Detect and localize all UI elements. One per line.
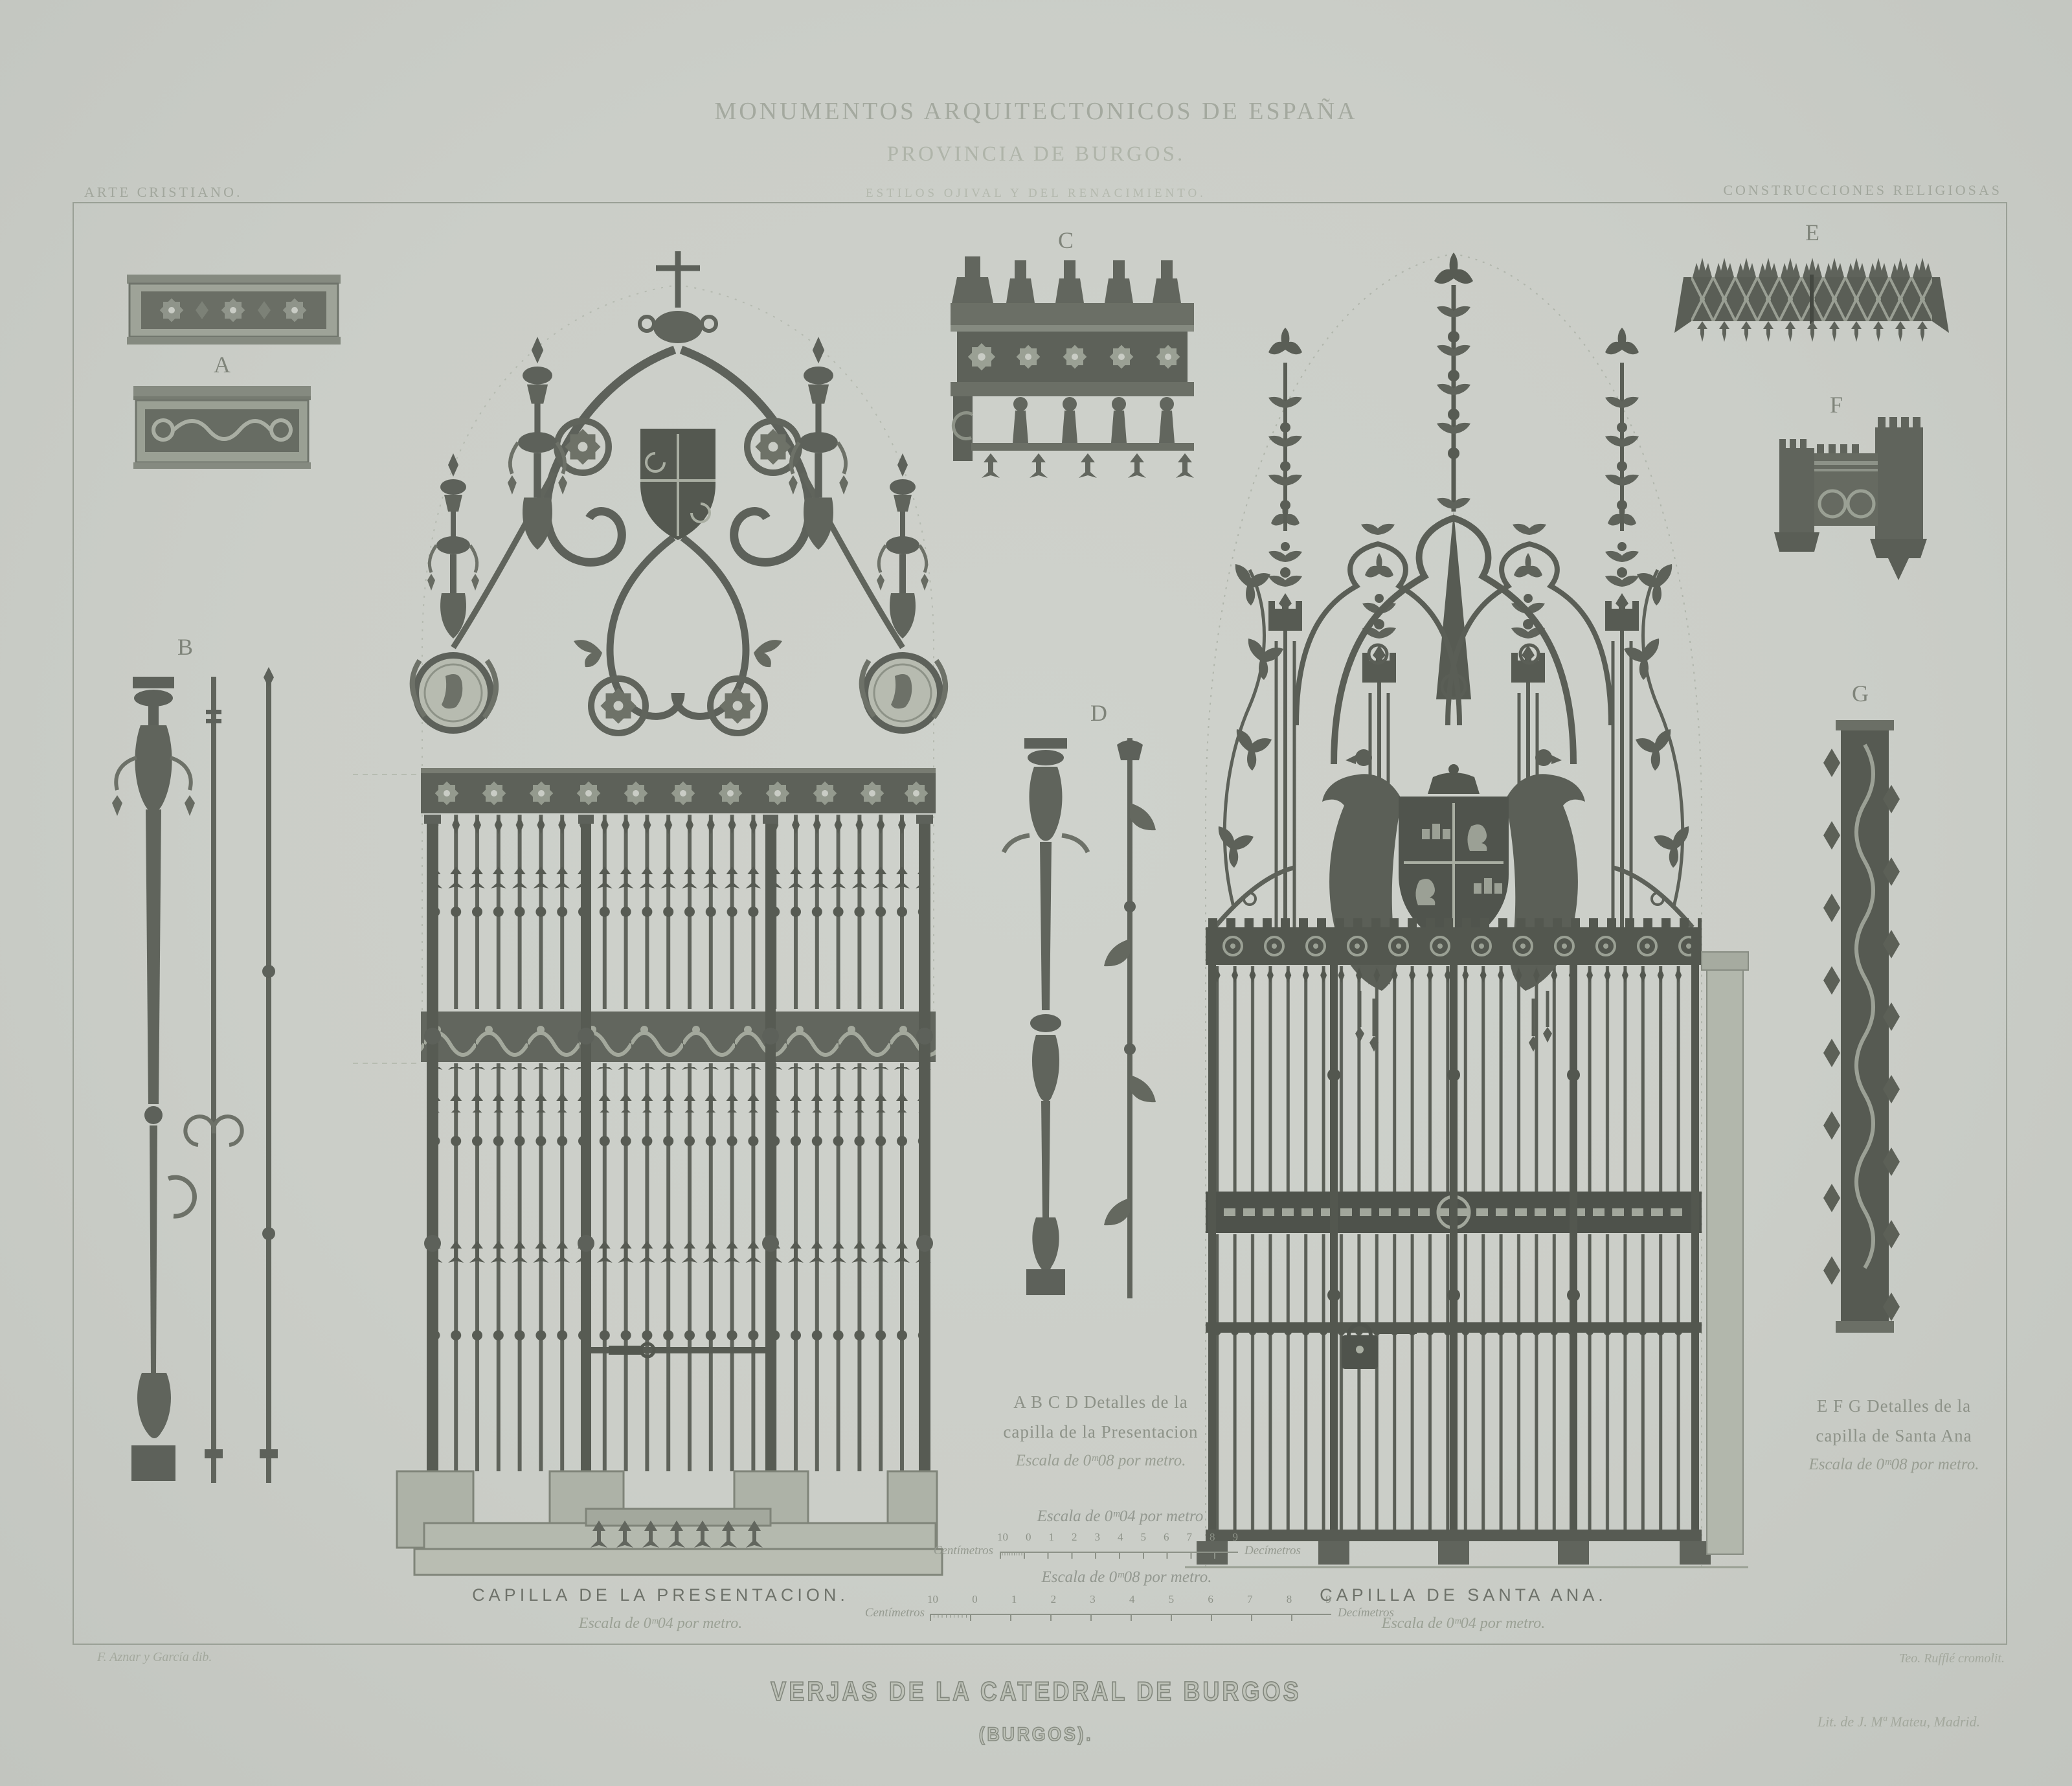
scale-large-subticks <box>930 1614 970 1618</box>
scale-small-subticks <box>1000 1552 1024 1555</box>
figure-letter-f: F <box>1830 391 1843 418</box>
tick-label: 9 <box>1233 1531 1239 1544</box>
left-gate-caption: CAPILLA DE LA PRESENTACION. <box>414 1585 906 1605</box>
tick-label: 8 <box>1210 1531 1215 1544</box>
scale-small-title: Escala de 0ᵐ04 por metro <box>939 1508 1301 1526</box>
tick-label: 3 <box>1095 1531 1101 1544</box>
abcd-note-line2: capilla de la Presentacion <box>971 1422 1230 1442</box>
tick-label: 1 <box>1011 1593 1017 1606</box>
plate-title: VERJAS DE LA CATEDRAL DE BURGOS <box>155 1676 1917 1707</box>
tick-label: 9 <box>1325 1593 1331 1606</box>
credit-draughtsman: F. Aznar y García dib. <box>97 1650 212 1665</box>
tick-label: 10 <box>997 1531 1008 1544</box>
tick-label: 2 <box>1072 1531 1077 1544</box>
tick-label: 4 <box>1129 1593 1135 1606</box>
province-subtitle: PROVINCIA DE BURGOS. <box>0 142 2072 166</box>
figure-letter-b: B <box>177 633 193 661</box>
category-left: ARTE CRISTIANO. <box>84 184 242 201</box>
tick-label: 1 <box>1049 1531 1055 1544</box>
tick-label: 5 <box>1141 1531 1147 1544</box>
credit-engraver: Teo. Rufflé cromolit. <box>1899 1651 2005 1666</box>
efg-note-line3: Escala de 0ᵐ08 por metro. <box>1748 1456 2040 1474</box>
scale-large-right-unit: Decímetros <box>1338 1606 1394 1620</box>
abcd-note-line3: Escala de 0ᵐ08 por metro. <box>971 1452 1230 1470</box>
efg-note-line2: capilla de Santa Ana <box>1748 1426 2040 1446</box>
tick-label: 6 <box>1208 1593 1213 1606</box>
plate-subtitle: (BURGOS). <box>104 1724 1968 1746</box>
tick-label: 7 <box>1187 1531 1193 1544</box>
tick-label: 4 <box>1118 1531 1123 1544</box>
figure-letter-c: C <box>1058 227 1074 254</box>
tick-label: 8 <box>1287 1593 1292 1606</box>
tick-label: 0 <box>1026 1531 1031 1544</box>
figure-letter-e: E <box>1805 219 1819 246</box>
category-right: CONSTRUCCIONES RELIGIOSAS <box>1723 182 2002 199</box>
tick-label: 5 <box>1169 1593 1175 1606</box>
scale-large-ticks: 10 0 1 2 3 4 5 6 7 8 9 <box>927 1593 1331 1606</box>
tick-label: 3 <box>1090 1593 1096 1606</box>
tick-label: 10 <box>927 1593 938 1606</box>
tick-label: 7 <box>1247 1593 1253 1606</box>
scale-large-left-unit: Centímetros <box>803 1606 925 1620</box>
lithography-imprint: Lit. de J. Mª Mateu, Madrid. <box>1818 1713 1980 1730</box>
scale-small-right-unit: Decímetros <box>1244 1544 1301 1558</box>
scale-small-left-unit: Centímetros <box>874 1544 993 1558</box>
series-title: MONUMENTOS ARQUITECTONICOS DE ESPAÑA <box>0 97 2072 126</box>
figure-letter-a: A <box>214 351 231 378</box>
abcd-note-line1: A B C D Detalles de la <box>971 1392 1230 1412</box>
figure-letter-g: G <box>1852 680 1869 707</box>
scale-small-ruler <box>1000 1552 1238 1559</box>
scale-small-ticks: 10 0 1 2 3 4 5 6 7 8 9 <box>997 1531 1238 1544</box>
engraving-plate: MONUMENTOS ARQUITECTONICOS DE ESPAÑA PRO… <box>0 0 2072 1786</box>
scale-large-ruler <box>930 1614 1331 1621</box>
tick-label: 6 <box>1164 1531 1169 1544</box>
efg-note-line1: E F G Detalles de la <box>1748 1396 2040 1416</box>
tick-label: 0 <box>972 1593 978 1606</box>
figure-letter-d: D <box>1090 699 1107 727</box>
scale-large-title: Escala de 0ᵐ08 por metro. <box>932 1568 1321 1587</box>
tick-label: 2 <box>1051 1593 1057 1606</box>
